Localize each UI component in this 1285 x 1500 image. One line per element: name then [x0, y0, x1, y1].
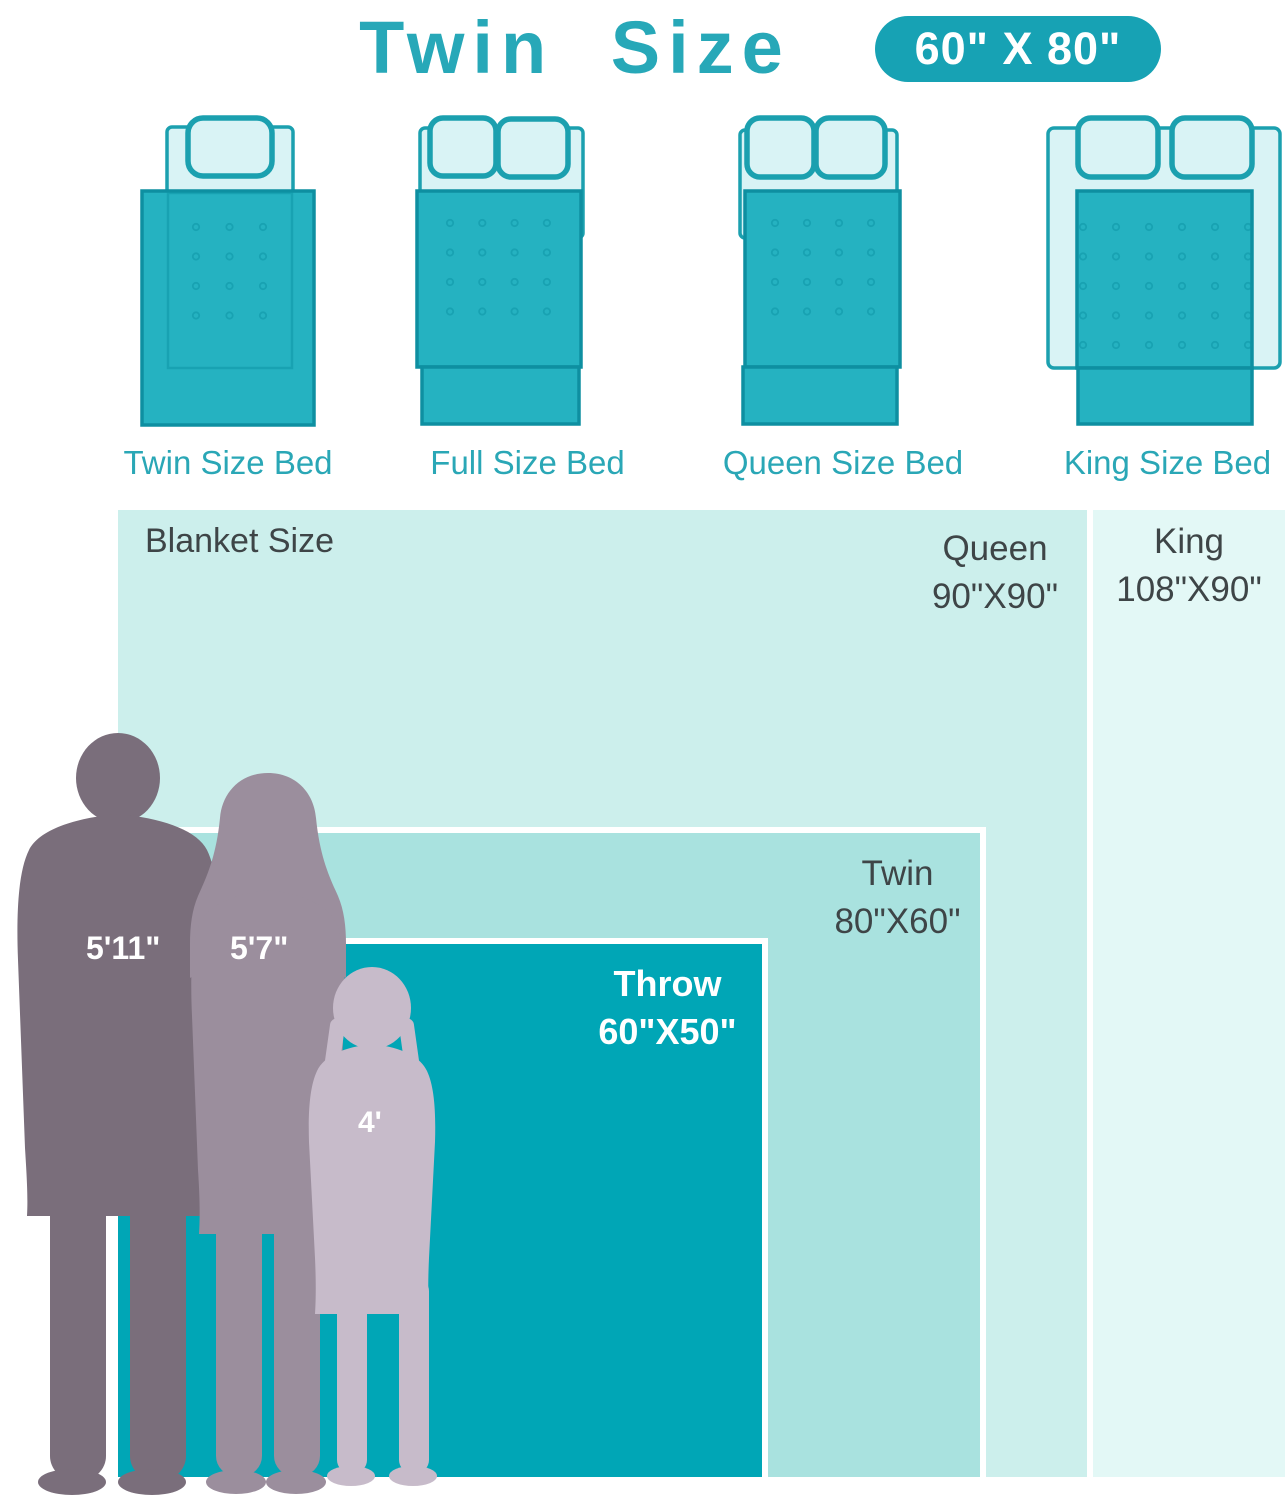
- twin-bed-icon: [140, 105, 316, 427]
- woman-height-label: 5'7": [230, 930, 288, 967]
- king-bed-label: King Size Bed: [1050, 444, 1285, 482]
- size-badge: 60" X 80": [875, 16, 1161, 82]
- girl-silhouette: [309, 967, 437, 1486]
- full-bed-label: Full Size Bed: [405, 444, 650, 482]
- king-size-label: King 108"X90": [1100, 518, 1278, 614]
- throw-size-dims: 60"X50": [585, 1008, 750, 1056]
- man-height-label: 5'11": [86, 930, 160, 967]
- queen-bed-icon: [735, 105, 905, 427]
- queen-bed-label: Queen Size Bed: [718, 444, 968, 482]
- people-silhouettes: [0, 718, 470, 1500]
- size-badge-text: 60" X 80": [915, 23, 1122, 75]
- blanket-size-infographic: Twin Size 60" X 80" Twin Size Bed Full: [0, 0, 1285, 1500]
- throw-size-label: Throw 60"X50": [585, 960, 750, 1056]
- girl-height-label: 4': [358, 1106, 382, 1140]
- man-silhouette: [17, 733, 218, 1495]
- blanket-size-label: Blanket Size: [145, 522, 334, 561]
- king-size-name: King: [1100, 518, 1278, 566]
- queen-size-name: Queen: [915, 525, 1075, 573]
- queen-size-dims: 90"X90": [915, 573, 1075, 621]
- throw-size-name: Throw: [585, 960, 750, 1008]
- twin-size-dims: 80"X60": [815, 898, 980, 946]
- twin-size-name: Twin: [815, 850, 980, 898]
- full-bed-icon: [415, 105, 585, 427]
- king-bed-icon: [1045, 105, 1283, 427]
- twin-bed-label: Twin Size Bed: [108, 444, 348, 482]
- king-size-dims: 108"X90": [1100, 566, 1278, 614]
- twin-size-label: Twin 80"X60": [815, 850, 980, 946]
- queen-size-label: Queen 90"X90": [915, 525, 1075, 621]
- page-title: Twin Size: [285, 0, 865, 95]
